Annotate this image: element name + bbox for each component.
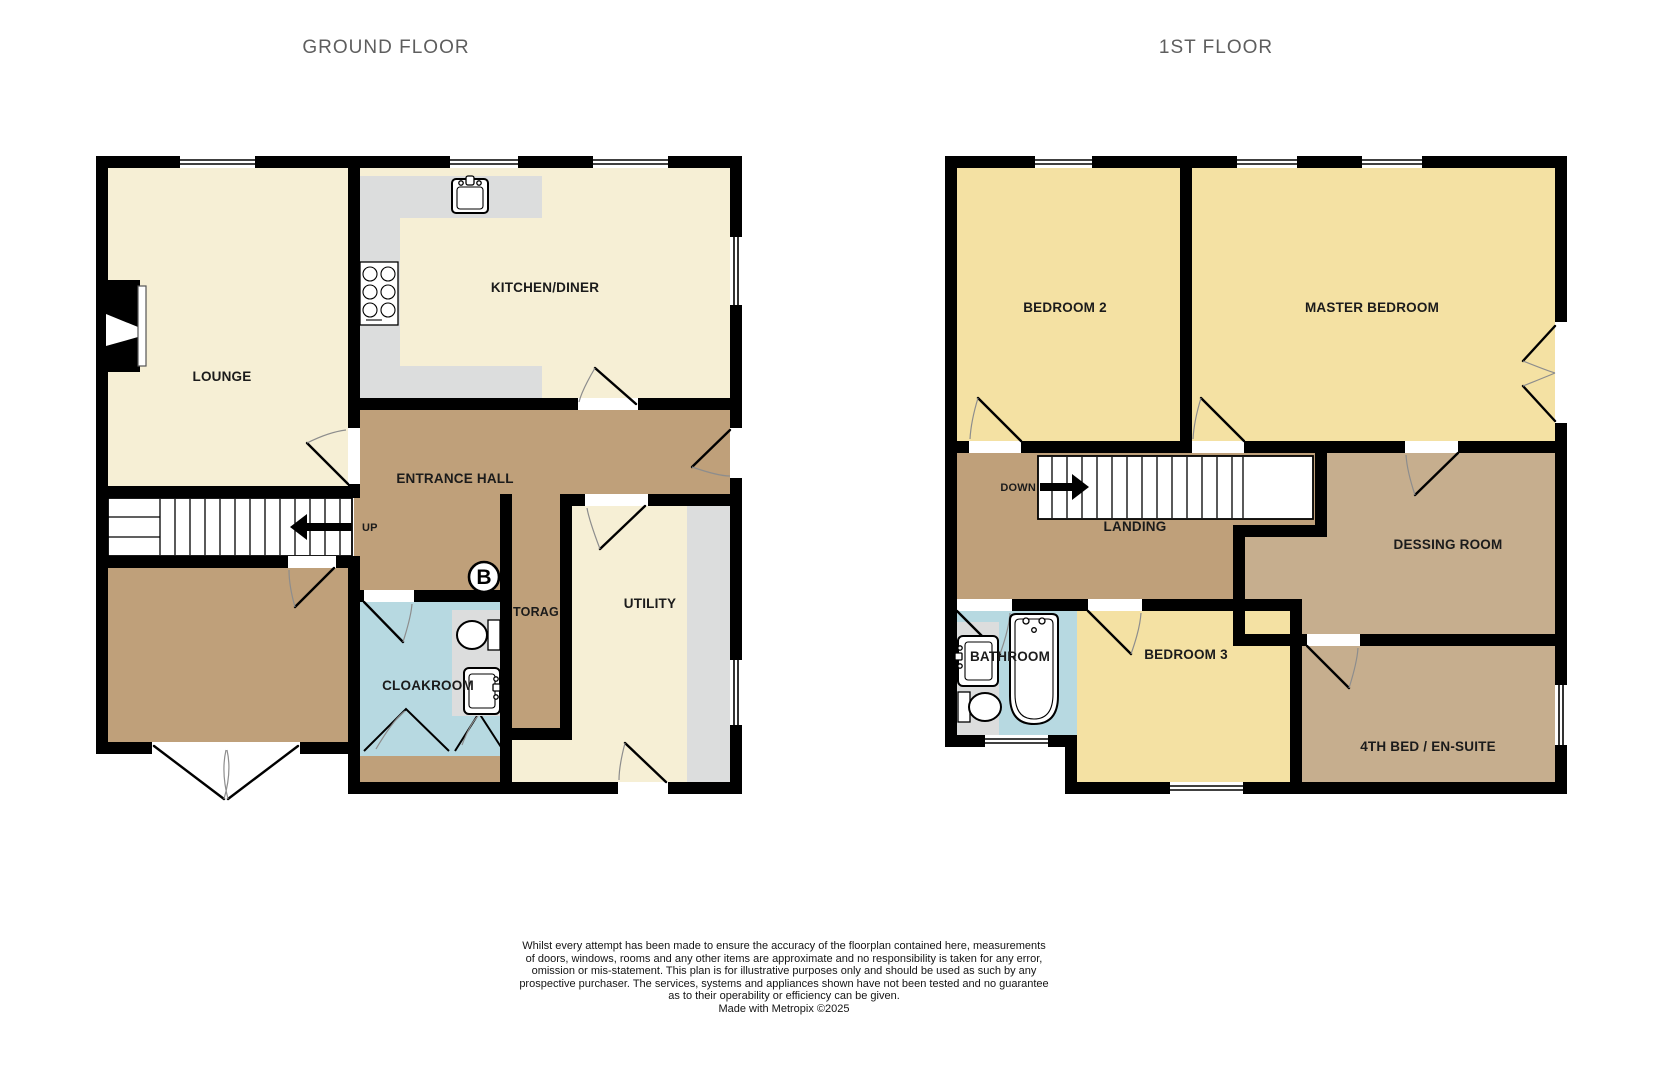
cloakroom-toilet-icon (457, 620, 500, 650)
window-master-2 (1362, 156, 1422, 168)
label-kitchen: KITCHEN/DINER (491, 280, 599, 295)
boiler-symbol: B (469, 562, 499, 592)
disclaimer-line-2: of doors, windows, rooms and any other i… (526, 953, 1043, 965)
staircase-ground (108, 498, 352, 556)
label-master: MASTER BEDROOM (1305, 300, 1439, 315)
utility-floor-corner (512, 740, 572, 784)
label-stairs-down: DOWN (1000, 482, 1036, 494)
label-storage: TORAG (513, 605, 559, 619)
window-master-1 (1237, 156, 1297, 168)
window-kitchen-1 (450, 156, 518, 168)
disclaimer-line-1: Whilst every attempt has been made to en… (522, 940, 1046, 952)
label-landing: LANDING (1104, 519, 1167, 534)
label-bedroom2: BEDROOM 2 (1023, 300, 1107, 315)
label-bed4: 4TH BED / EN-SUITE (1360, 739, 1496, 754)
disclaimer-line-3: omission or mis-statement. This plan is … (532, 965, 1037, 977)
window-kitchen-2 (593, 156, 668, 168)
label-cloakroom: CLOAKROOM (382, 678, 474, 693)
boiler-letter: B (476, 566, 491, 589)
room-front-floor (102, 568, 354, 754)
window-bathroom (985, 735, 1048, 747)
ground-floor-plan: B LOUNGE KITCHEN/DINER ENTRANCE HALL UP … (96, 156, 742, 799)
window-lounge (180, 156, 255, 168)
first-floor-title: 1ST FLOOR (1159, 37, 1273, 58)
disclaimer-line-5: as to their operability or efficiency ca… (668, 990, 900, 1002)
first-floor-plan: BEDROOM 2 MASTER BEDROOM DOWN LANDING DE… (945, 156, 1567, 794)
label-dressing: DESSING ROOM (1394, 537, 1503, 552)
window-bed4 (1555, 685, 1567, 745)
staircase-first (1038, 456, 1313, 519)
label-lounge: LOUNGE (193, 369, 252, 384)
window-bedroom2 (1035, 156, 1092, 168)
label-bedroom3: BEDROOM 3 (1144, 647, 1228, 662)
hob-icon (360, 262, 398, 325)
floorplan-page: B LOUNGE KITCHEN/DINER ENTRANCE HALL UP … (0, 0, 1671, 1080)
floorplan-drawing: B LOUNGE KITCHEN/DINER ENTRANCE HALL UP … (0, 0, 1671, 1080)
label-bathroom: BATHROOM (970, 649, 1050, 664)
label-hall: ENTRANCE HALL (396, 471, 513, 486)
window-bedroom3 (1170, 782, 1243, 794)
label-stairs-up: UP (362, 522, 378, 534)
metropix-credit: Made with Metropix ©2025 (718, 1003, 849, 1015)
room-bed4-floor (1296, 640, 1561, 788)
utility-counter (687, 506, 736, 782)
ground-floor-title: GROUND FLOOR (302, 37, 469, 58)
window-utility-side (730, 660, 742, 725)
bathroom-toilet-icon (958, 692, 1001, 722)
disclaimer-line-4: prospective purchaser. The services, sys… (519, 978, 1048, 990)
label-utility: UTILITY (624, 596, 676, 611)
window-kitchen-side (730, 237, 742, 305)
master-balcony-doors-opening (1555, 322, 1567, 423)
kitchen-sink-icon (452, 176, 488, 213)
disclaimer: Whilst every attempt has been made to en… (519, 940, 1048, 1015)
bathtub-icon (1010, 614, 1058, 724)
